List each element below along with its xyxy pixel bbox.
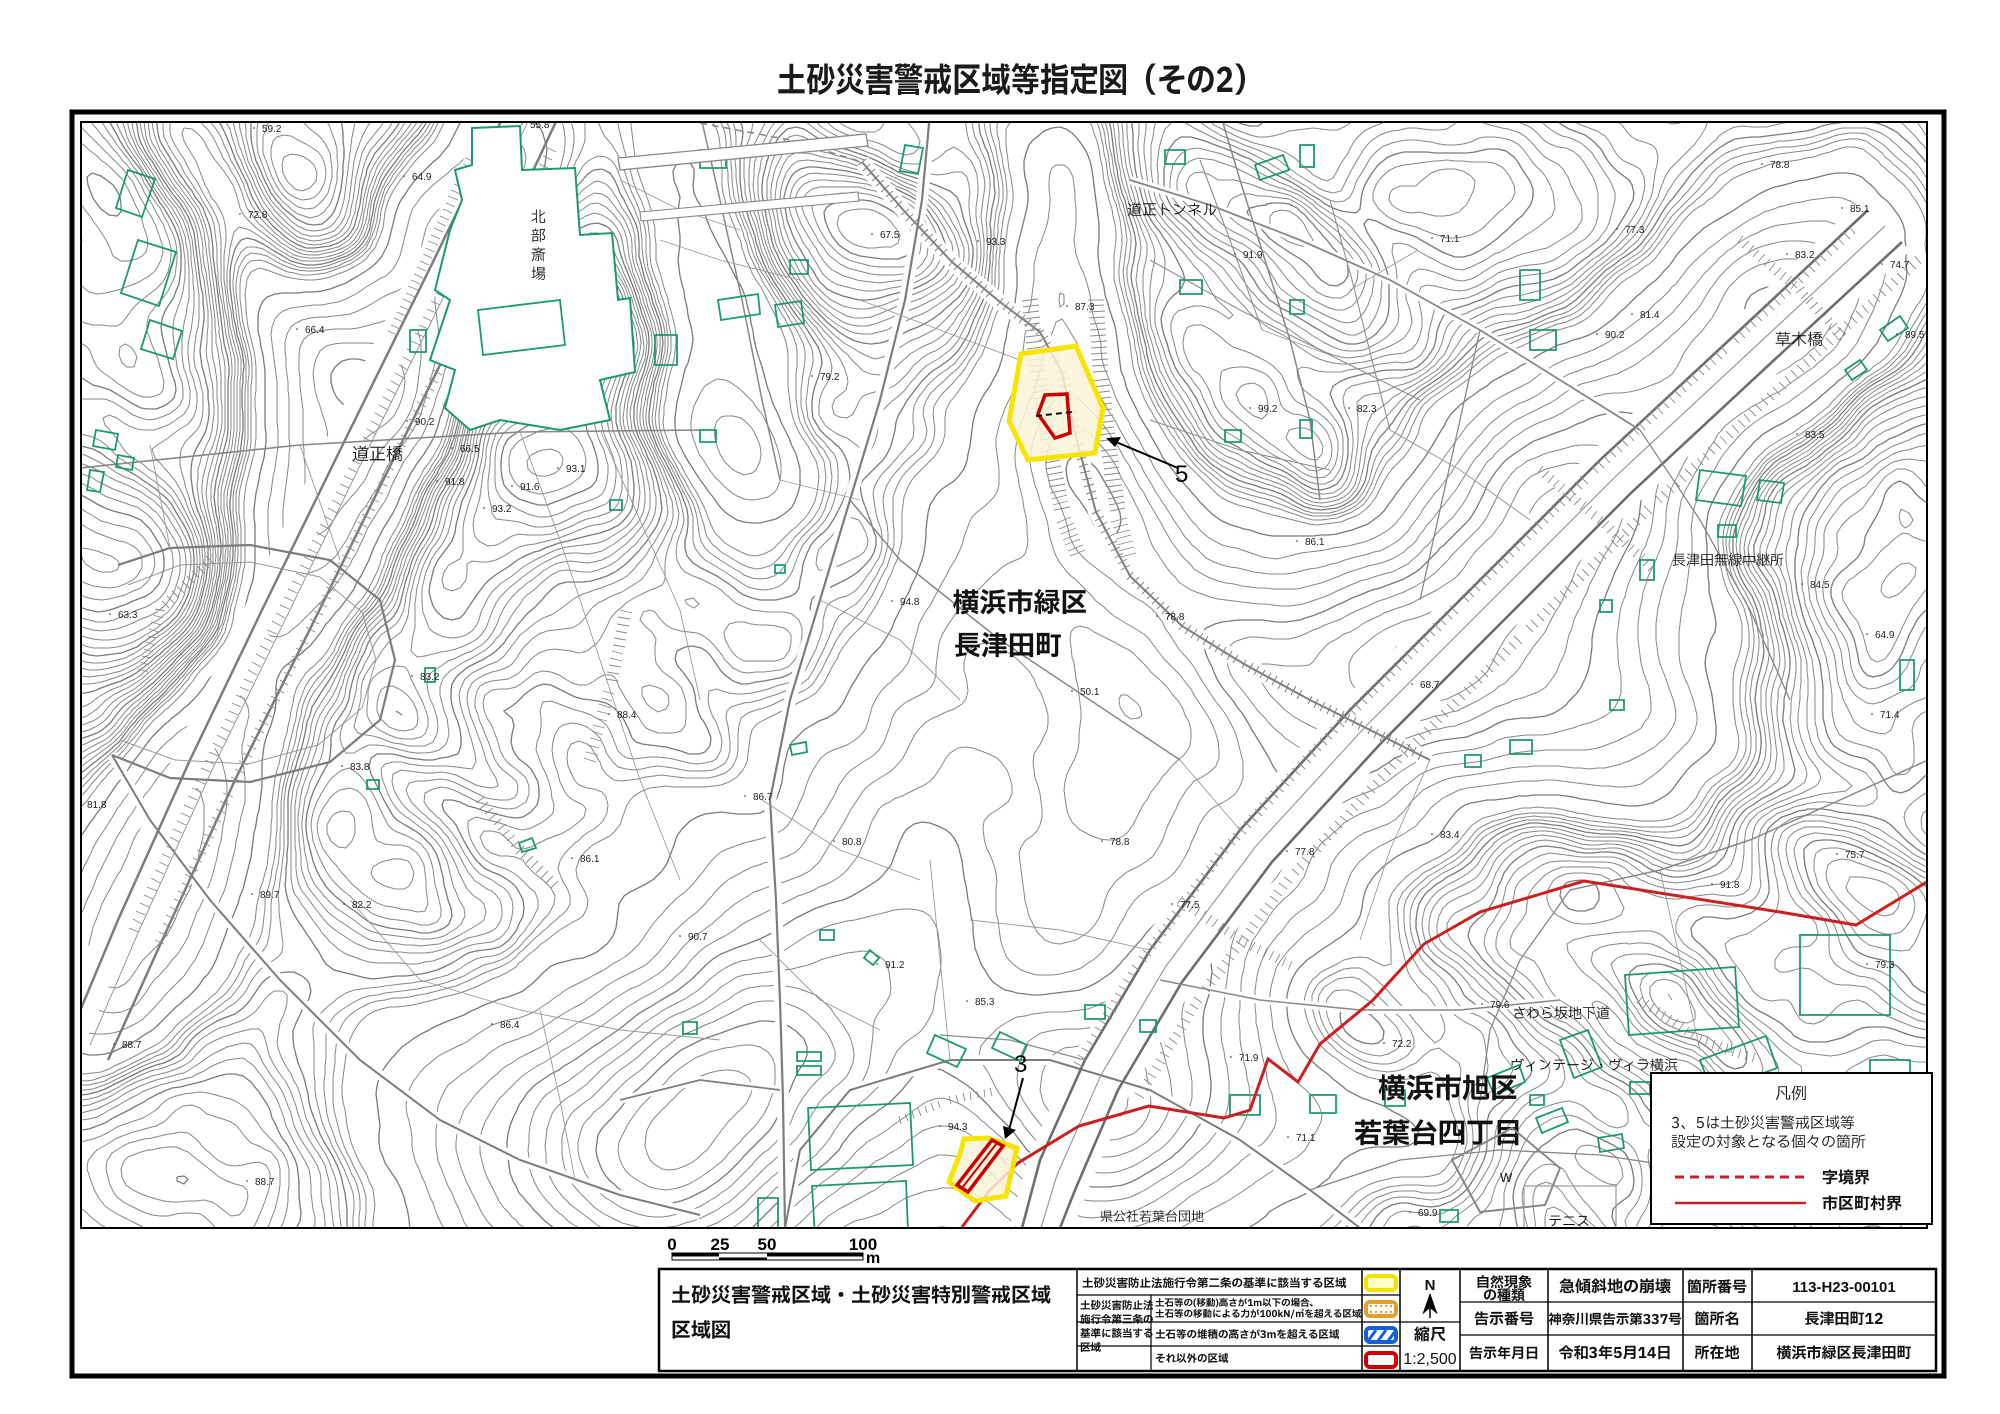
svg-text:78.8: 78.8 xyxy=(1110,837,1130,848)
svg-text:78.8: 78.8 xyxy=(1770,160,1790,171)
svg-text:88.7: 88.7 xyxy=(122,1040,142,1051)
svg-text:50.1: 50.1 xyxy=(1080,687,1100,698)
svg-text:84.5: 84.5 xyxy=(1810,580,1830,591)
svg-text:82.2: 82.2 xyxy=(352,900,372,911)
svg-text:91.8: 91.8 xyxy=(1720,880,1740,891)
svg-text:91.2: 91.2 xyxy=(885,960,905,971)
svg-text:71.4: 71.4 xyxy=(1880,710,1900,721)
svg-text:86.1: 86.1 xyxy=(580,854,600,865)
svg-text:66.5: 66.5 xyxy=(460,444,480,455)
svg-text:91.8: 91.8 xyxy=(445,477,465,488)
svg-text:86.4: 86.4 xyxy=(500,1020,520,1031)
svg-text:68.7: 68.7 xyxy=(1420,680,1440,691)
svg-text:91.6: 91.6 xyxy=(520,482,540,493)
svg-text:N: N xyxy=(1425,1277,1436,1294)
svg-text:85.3: 85.3 xyxy=(975,997,995,1008)
svg-text:64.9: 64.9 xyxy=(412,172,432,183)
svg-text:80.8: 80.8 xyxy=(842,837,862,848)
svg-text:85.1: 85.1 xyxy=(1850,204,1870,215)
svg-text:77.5: 77.5 xyxy=(1180,900,1200,911)
svg-text:5: 5 xyxy=(1175,461,1188,488)
svg-text:88.7: 88.7 xyxy=(255,1177,275,1188)
svg-text:93.2: 93.2 xyxy=(492,504,512,515)
svg-text:m: m xyxy=(866,1250,880,1267)
svg-text:59.2: 59.2 xyxy=(262,124,282,135)
svg-text:99.2: 99.2 xyxy=(1258,404,1278,415)
svg-text:93.3: 93.3 xyxy=(986,237,1006,248)
svg-text:81.8: 81.8 xyxy=(87,800,107,811)
svg-text:90.2: 90.2 xyxy=(415,417,435,428)
svg-text:72.8: 72.8 xyxy=(248,210,268,221)
svg-text:64.9: 64.9 xyxy=(1875,630,1895,641)
svg-text:0: 0 xyxy=(667,1235,676,1254)
svg-text:89.7: 89.7 xyxy=(260,890,280,901)
svg-text:79.3: 79.3 xyxy=(1875,960,1895,971)
svg-text:25: 25 xyxy=(711,1235,730,1254)
svg-text:66.4: 66.4 xyxy=(305,325,325,336)
svg-text:50: 50 xyxy=(758,1235,777,1254)
svg-text:75.7: 75.7 xyxy=(1845,850,1865,861)
svg-text:86.1: 86.1 xyxy=(1305,537,1325,548)
svg-text:88.4: 88.4 xyxy=(617,710,637,721)
svg-text:86.7: 86.7 xyxy=(753,792,773,803)
svg-text:82.3: 82.3 xyxy=(1357,404,1377,415)
svg-text:71.1: 71.1 xyxy=(1440,234,1460,245)
svg-text:69.9: 69.9 xyxy=(1418,1208,1438,1219)
svg-text:83.2: 83.2 xyxy=(420,672,440,683)
svg-text:67.5: 67.5 xyxy=(880,230,900,241)
svg-text:93.1: 93.1 xyxy=(566,464,586,475)
svg-text:90.7: 90.7 xyxy=(688,932,708,943)
svg-text:71.9: 71.9 xyxy=(1239,1053,1259,1064)
svg-text:94.8: 94.8 xyxy=(900,597,920,608)
svg-text:W: W xyxy=(1500,1170,1513,1185)
svg-text:113-H23-00101: 113-H23-00101 xyxy=(1792,1279,1895,1296)
svg-text:83.5: 83.5 xyxy=(1805,430,1825,441)
svg-text:74.7: 74.7 xyxy=(1890,260,1910,271)
svg-text:79.6: 79.6 xyxy=(1490,1000,1510,1011)
svg-text:79.2: 79.2 xyxy=(820,372,840,383)
svg-text:63.3: 63.3 xyxy=(118,610,138,621)
svg-text:3: 3 xyxy=(1014,1051,1027,1078)
svg-text:94.3: 94.3 xyxy=(948,1122,968,1133)
svg-text:77.3: 77.3 xyxy=(1625,225,1645,236)
svg-text:83.2: 83.2 xyxy=(1795,250,1815,261)
svg-text:1:2,500: 1:2,500 xyxy=(1403,1351,1456,1368)
svg-text:89.5: 89.5 xyxy=(1905,330,1925,341)
svg-text:72.2: 72.2 xyxy=(1392,1039,1412,1050)
svg-text:77.8: 77.8 xyxy=(1295,847,1315,858)
svg-text:83.4: 83.4 xyxy=(1440,830,1460,841)
svg-text:81.4: 81.4 xyxy=(1640,310,1660,321)
svg-text:87.3: 87.3 xyxy=(1075,302,1095,313)
svg-text:71.1: 71.1 xyxy=(1296,1133,1316,1144)
svg-text:91.9: 91.9 xyxy=(1243,250,1263,261)
svg-text:78.8: 78.8 xyxy=(1165,612,1185,623)
svg-text:90.2: 90.2 xyxy=(1605,330,1625,341)
svg-text:83.8: 83.8 xyxy=(350,762,370,773)
